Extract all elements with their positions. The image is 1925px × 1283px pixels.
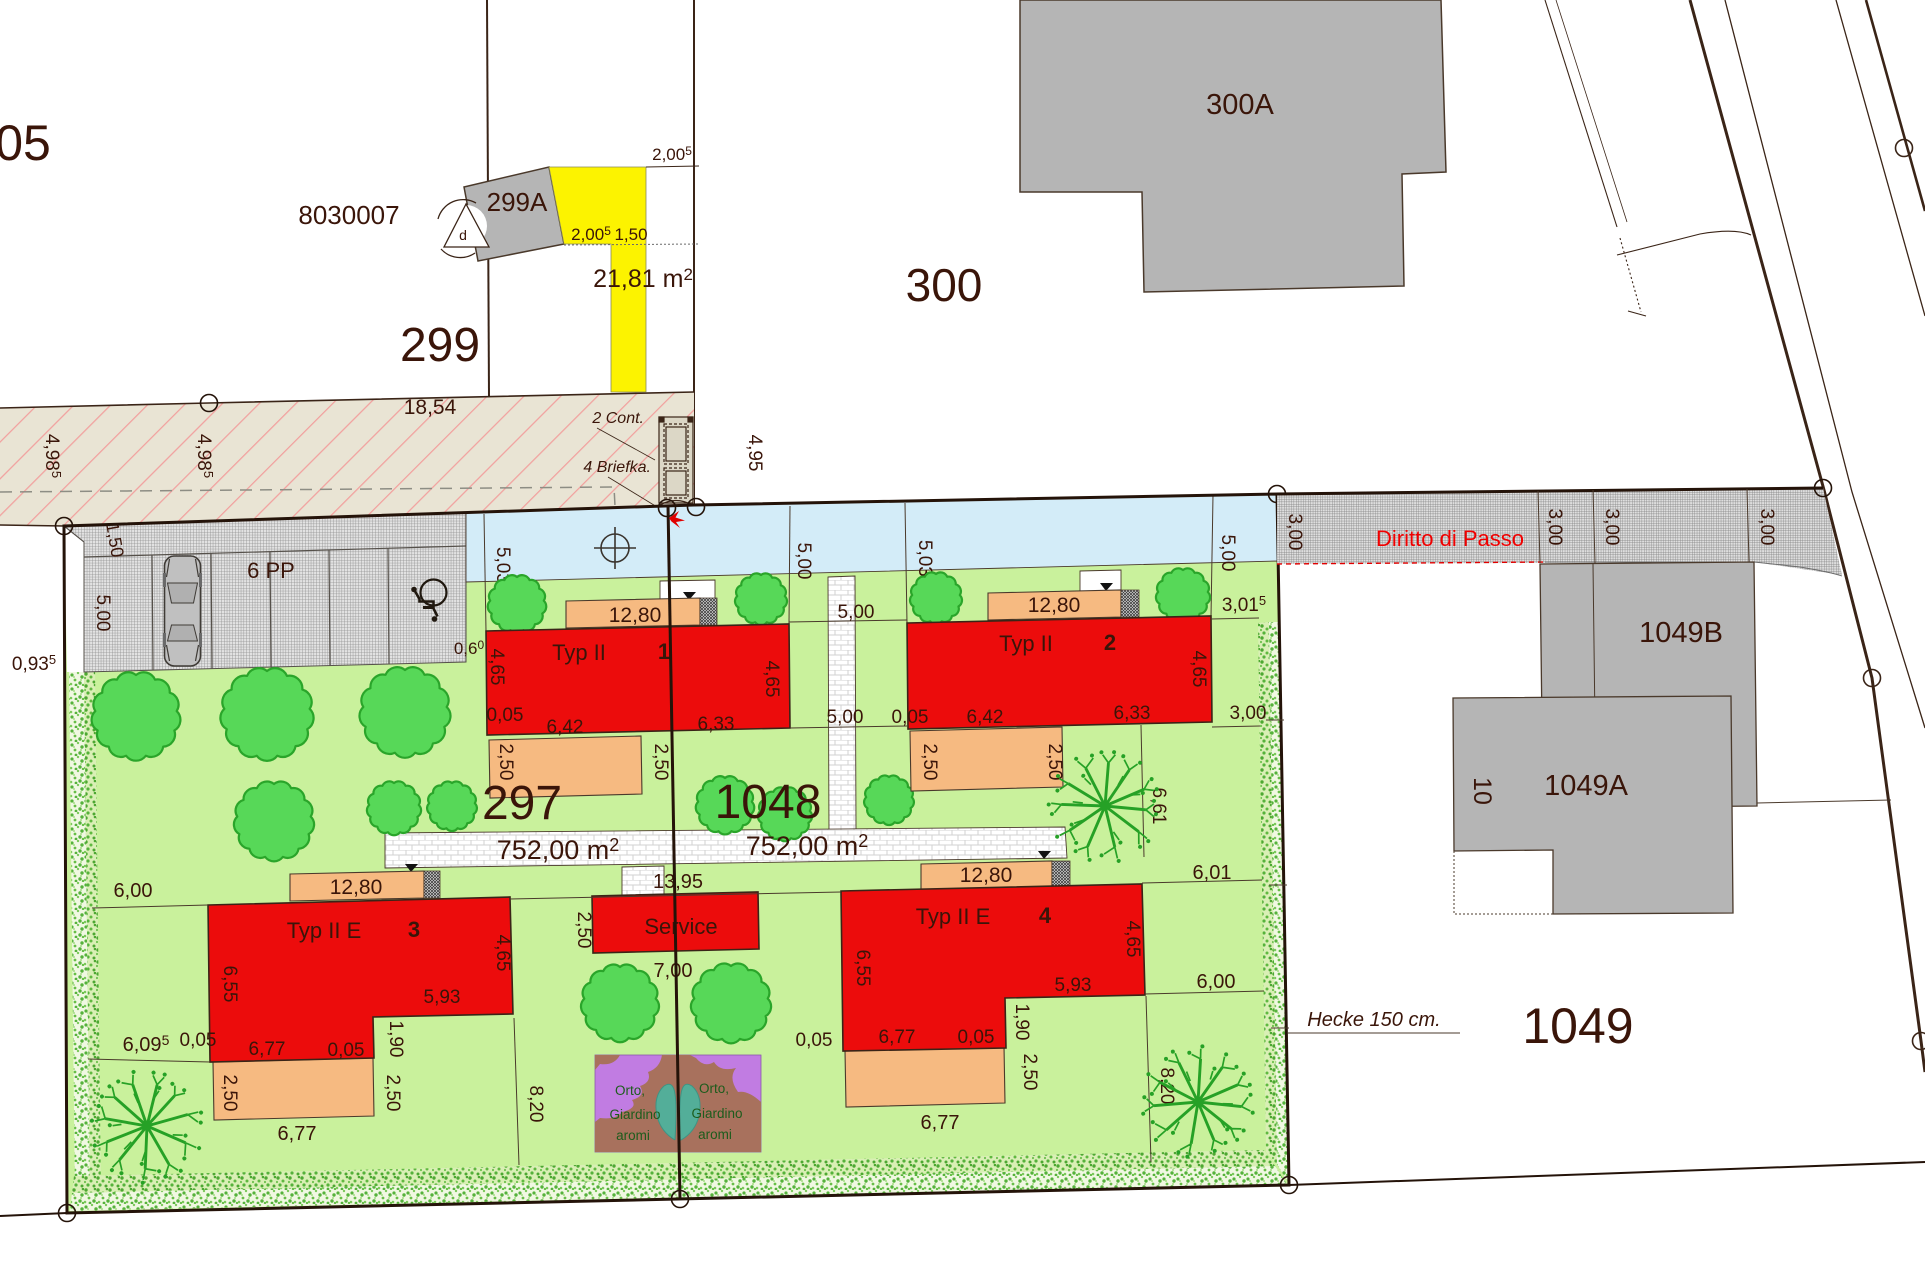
svg-text:5,00: 5,00 (838, 602, 875, 623)
svg-text:Giardino: Giardino (609, 1107, 660, 1122)
svg-text:297: 297 (482, 777, 562, 830)
svg-text:6,00: 6,00 (114, 880, 153, 902)
svg-text:5,93: 5,93 (1055, 975, 1092, 996)
svg-text:1049B: 1049B (1639, 617, 1723, 649)
svg-text:Orto,: Orto, (615, 1083, 645, 1098)
svg-text:3: 3 (408, 917, 420, 942)
svg-text:Typ II: Typ II (999, 631, 1053, 656)
svg-text:6,77: 6,77 (921, 1112, 960, 1134)
svg-text:5,00: 5,00 (827, 707, 864, 728)
svg-text:2,50: 2,50 (382, 1075, 403, 1112)
svg-text:8,20: 8,20 (525, 1086, 546, 1123)
svg-text:1,50: 1,50 (614, 225, 647, 244)
svg-text:3,00: 3,00 (1544, 509, 1565, 546)
svg-text:2,50: 2,50 (219, 1075, 240, 1112)
svg-text:4,65: 4,65 (1122, 921, 1143, 958)
svg-text:aromi: aromi (616, 1128, 650, 1143)
svg-text:299: 299 (400, 319, 480, 372)
svg-text:2 Cont.: 2 Cont. (591, 410, 644, 427)
svg-text:2,50: 2,50 (1019, 1054, 1040, 1091)
svg-text:4,65: 4,65 (1188, 651, 1209, 688)
svg-text:7,00: 7,00 (654, 960, 693, 982)
svg-text:752,00 m2: 752,00 m2 (746, 831, 869, 861)
svg-text:6,01: 6,01 (1193, 862, 1232, 884)
svg-text:0,05: 0,05 (796, 1030, 833, 1051)
svg-text:8030007: 8030007 (298, 200, 399, 230)
svg-text:6,42: 6,42 (967, 707, 1004, 728)
svg-text:3,00: 3,00 (1284, 514, 1305, 551)
svg-text:12,80: 12,80 (609, 604, 662, 627)
svg-text:6,33: 6,33 (698, 714, 735, 735)
svg-text:6,77: 6,77 (879, 1027, 916, 1048)
svg-text:1,90: 1,90 (385, 1021, 406, 1058)
svg-text:1,90: 1,90 (1011, 1004, 1032, 1041)
svg-text:300: 300 (906, 259, 983, 311)
svg-text:6 PP: 6 PP (247, 558, 295, 583)
svg-text:299A: 299A (487, 187, 548, 217)
svg-text:4 Briefka.: 4 Briefka. (583, 459, 651, 476)
svg-text:0,05: 0,05 (487, 705, 524, 726)
svg-text:Orto,: Orto, (699, 1081, 729, 1096)
svg-text:4,65: 4,65 (492, 935, 513, 972)
svg-text:1: 1 (658, 639, 670, 664)
svg-text:12,80: 12,80 (960, 864, 1013, 887)
svg-text:6,55: 6,55 (852, 950, 873, 987)
svg-text:5,00: 5,00 (92, 595, 113, 632)
svg-text:300A: 300A (1206, 89, 1274, 121)
svg-text:10: 10 (1468, 777, 1496, 805)
svg-text:Typ II: Typ II (552, 640, 606, 665)
svg-text:3,00: 3,00 (1601, 509, 1622, 546)
svg-text:21,81 m2: 21,81 m2 (593, 265, 693, 293)
svg-text:6,00: 6,00 (1197, 971, 1236, 993)
svg-text:18,54: 18,54 (404, 396, 457, 419)
svg-text:d: d (459, 227, 467, 243)
svg-text:13,95: 13,95 (653, 871, 703, 893)
svg-text:5,00: 5,00 (1217, 535, 1238, 572)
svg-text:12,80: 12,80 (1028, 594, 1081, 617)
svg-text:2,50: 2,50 (1044, 744, 1065, 781)
svg-text:Diritto di Passo: Diritto di Passo (1376, 526, 1524, 551)
svg-text:3,00: 3,00 (1230, 703, 1267, 724)
svg-text:0,05: 0,05 (328, 1040, 365, 1061)
svg-text:1048: 1048 (715, 776, 822, 829)
svg-text:5,93: 5,93 (424, 987, 461, 1008)
svg-text:0,05: 0,05 (958, 1027, 995, 1048)
svg-text:05: 05 (0, 115, 51, 171)
svg-text:4: 4 (1039, 903, 1052, 928)
svg-text:4,65: 4,65 (486, 649, 507, 686)
svg-text:0,05: 0,05 (180, 1030, 217, 1051)
svg-text:Giardino: Giardino (691, 1106, 742, 1121)
svg-text:6,33: 6,33 (1114, 703, 1151, 724)
svg-text:5,00: 5,00 (793, 543, 814, 580)
svg-text:aromi: aromi (698, 1127, 732, 1142)
svg-text:6,77: 6,77 (249, 1039, 286, 1060)
svg-text:Typ II E: Typ II E (287, 918, 362, 943)
svg-text:0,05: 0,05 (892, 707, 929, 728)
svg-text:2,50: 2,50 (919, 744, 940, 781)
svg-text:2,50: 2,50 (650, 744, 671, 781)
svg-text:3,00: 3,00 (1756, 509, 1777, 546)
svg-text:2: 2 (1104, 630, 1116, 655)
svg-text:6,77: 6,77 (278, 1123, 317, 1145)
svg-text:4,95: 4,95 (744, 435, 765, 472)
svg-text:Service: Service (644, 914, 717, 939)
svg-text:2,50: 2,50 (495, 744, 516, 781)
svg-text:6,55: 6,55 (219, 966, 240, 1003)
svg-text:4,65: 4,65 (761, 661, 782, 698)
svg-text:1049: 1049 (1522, 998, 1633, 1054)
svg-text:6,42: 6,42 (547, 717, 584, 738)
svg-text:1049A: 1049A (1544, 770, 1629, 802)
svg-text:Typ II E: Typ II E (916, 904, 991, 929)
svg-text:Hecke 150 cm.: Hecke 150 cm. (1307, 1009, 1440, 1031)
svg-text:2,50: 2,50 (573, 912, 594, 949)
svg-text:12,80: 12,80 (330, 876, 383, 899)
svg-text:752,00 m2: 752,00 m2 (497, 835, 620, 865)
